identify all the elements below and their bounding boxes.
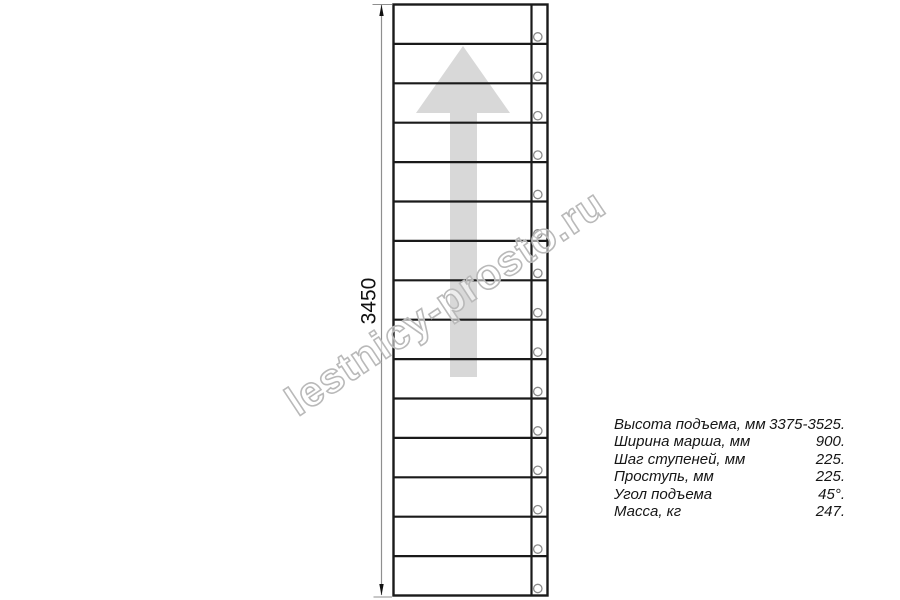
stringer-hole-icon bbox=[534, 348, 542, 356]
spec-value: 247. bbox=[816, 503, 845, 520]
spec-value: 3375-3525. bbox=[769, 416, 845, 433]
stringer-hole-icon bbox=[534, 190, 542, 198]
spec-row: Проступь, мм225. bbox=[614, 468, 845, 485]
stringer-hole-icon bbox=[534, 545, 542, 553]
watermark-text: lestnicy-prosto.ru bbox=[277, 180, 614, 425]
spec-value: 45°. bbox=[818, 486, 845, 503]
spec-row: Высота подъема, мм3375-3525. bbox=[614, 416, 845, 433]
stringer-holes bbox=[534, 33, 542, 593]
spec-label: Масса, кг bbox=[614, 503, 681, 520]
stringer-hole-icon bbox=[534, 309, 542, 317]
stringer-hole-icon bbox=[534, 584, 542, 592]
specs-table: Высота подъема, мм3375-3525.Ширина марша… bbox=[614, 416, 845, 520]
stringer-hole-icon bbox=[534, 506, 542, 514]
spec-label: Ширина марша, мм bbox=[614, 433, 750, 450]
dimension-label: 3450 bbox=[358, 278, 381, 325]
spec-label: Высота подъема, мм bbox=[614, 416, 766, 433]
spec-row: Угол подъема45°. bbox=[614, 486, 845, 503]
spec-value: 225. bbox=[816, 468, 845, 485]
spec-row: Ширина марша, мм900. bbox=[614, 433, 845, 450]
dimension-arrow-top-icon bbox=[379, 5, 383, 17]
stringer-hole-icon bbox=[534, 387, 542, 395]
dimension: 3450 bbox=[358, 5, 392, 598]
spec-label: Проступь, мм bbox=[614, 468, 714, 485]
spec-row: Шаг ступеней, мм225. bbox=[614, 451, 845, 468]
stringer-hole-icon bbox=[534, 112, 542, 120]
staircase-drawing-page: 3450 lestnicy-prosto.ru Высота подъема, … bbox=[0, 0, 900, 600]
spec-label: Шаг ступеней, мм bbox=[614, 451, 745, 468]
stringer-hole-icon bbox=[534, 72, 542, 80]
spec-value: 900. bbox=[816, 433, 845, 450]
stringer-hole-icon bbox=[534, 151, 542, 159]
spec-value: 225. bbox=[816, 451, 845, 468]
spec-label: Угол подъема bbox=[614, 486, 712, 503]
stringer-hole-icon bbox=[534, 466, 542, 474]
spec-row: Масса, кг247. bbox=[614, 503, 845, 520]
stringer-hole-icon bbox=[534, 33, 542, 41]
dimension-arrow-bottom-icon bbox=[379, 584, 383, 596]
stringer-hole-icon bbox=[534, 427, 542, 435]
